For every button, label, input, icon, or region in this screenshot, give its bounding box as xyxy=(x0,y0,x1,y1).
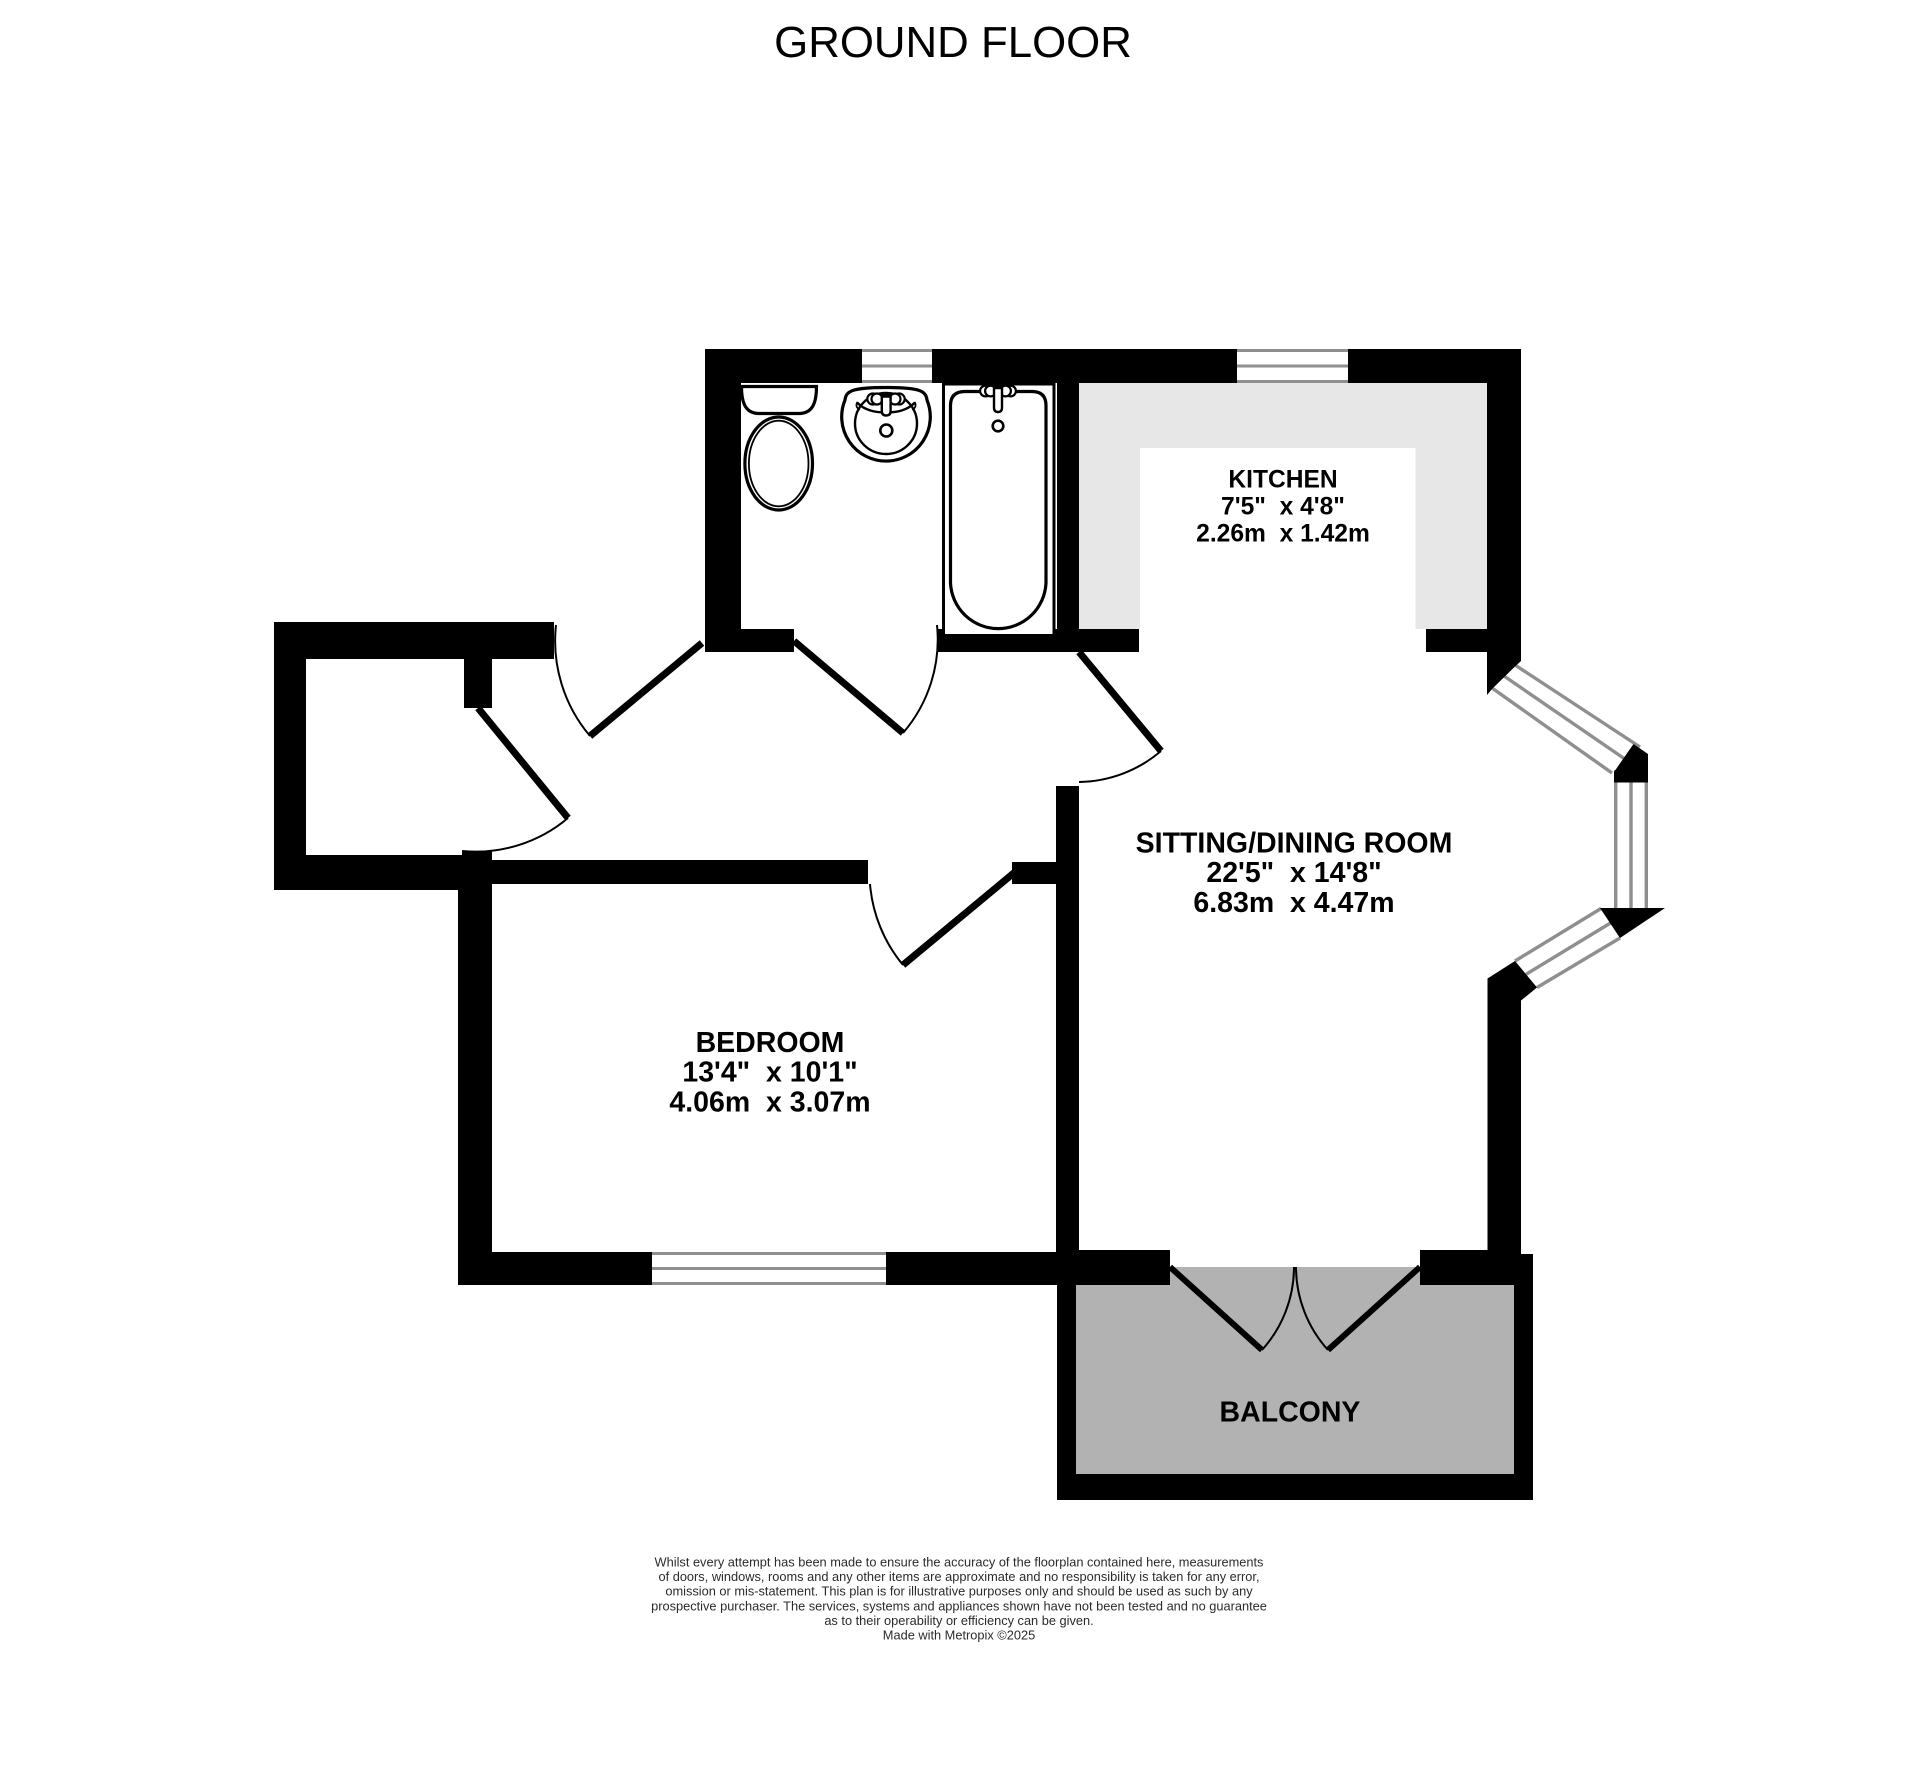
svg-text:omission or mis-statement. Thi: omission or mis-statement. This plan is … xyxy=(665,1584,1253,1599)
svg-text:KITCHEN: KITCHEN xyxy=(1228,467,1337,494)
svg-text:of doors, windows, rooms and a: of doors, windows, rooms and any other i… xyxy=(658,1569,1259,1584)
svg-text:prospective purchaser. The ser: prospective purchaser. The services, sys… xyxy=(651,1598,1267,1613)
svg-text:22'5" x 14'8": 22'5" x 14'8" xyxy=(1206,857,1381,889)
svg-text:Made with Metropix ©2025: Made with Metropix ©2025 xyxy=(883,1628,1035,1643)
svg-text:2.26m x 1.42m: 2.26m x 1.42m xyxy=(1196,521,1370,548)
svg-text:BEDROOM: BEDROOM xyxy=(696,1027,845,1059)
svg-text:SITTING/DINING ROOM: SITTING/DINING ROOM xyxy=(1136,827,1453,859)
svg-text:as to their operability or eff: as to their operability or efficiency ca… xyxy=(824,1613,1093,1628)
svg-text:13'4" x 10'1": 13'4" x 10'1" xyxy=(682,1057,857,1089)
svg-text:6.83m x 4.47m: 6.83m x 4.47m xyxy=(1193,887,1394,919)
svg-text:BALCONY: BALCONY xyxy=(1220,1397,1361,1429)
svg-text:GROUND FLOOR: GROUND FLOOR xyxy=(774,18,1132,67)
svg-text:Whilst every attempt has been: Whilst every attempt has been made to en… xyxy=(655,1555,1264,1570)
svg-text:7'5" x 4'8": 7'5" x 4'8" xyxy=(1221,494,1345,521)
svg-text:4.06m x 3.07m: 4.06m x 3.07m xyxy=(669,1087,870,1119)
